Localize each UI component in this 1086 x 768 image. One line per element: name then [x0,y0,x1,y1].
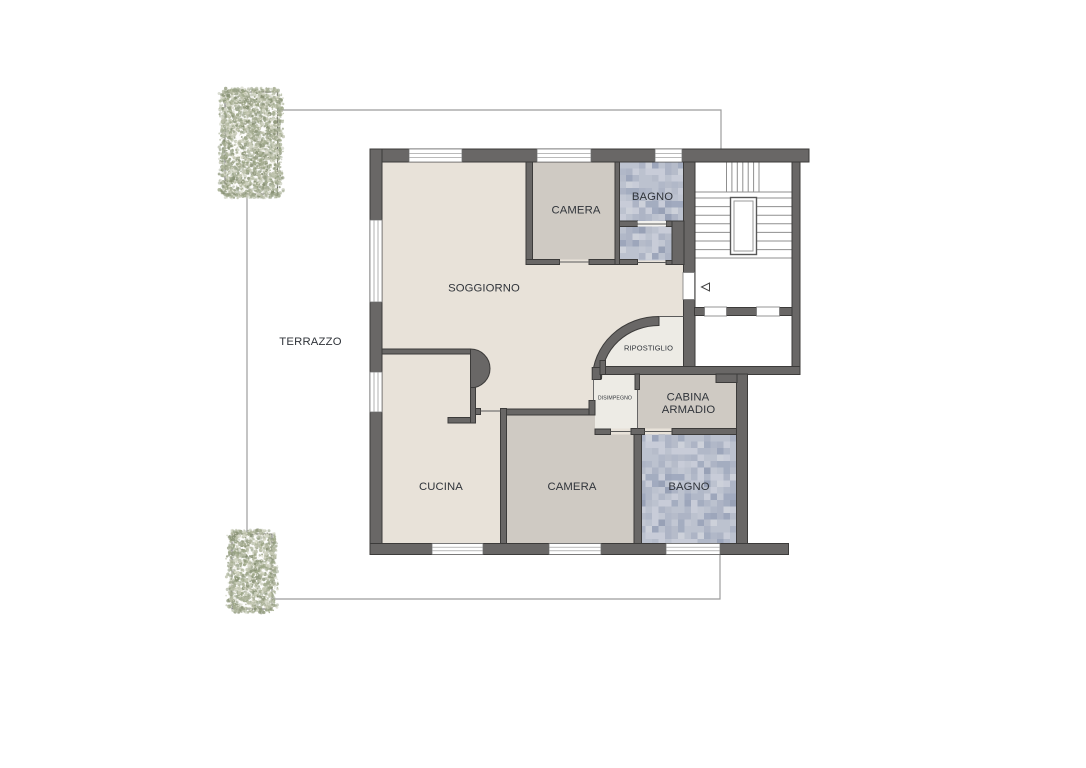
svg-text:CAMERA: CAMERA [548,481,597,493]
svg-text:CAMERA: CAMERA [552,205,601,217]
svg-text:BAGNO: BAGNO [668,481,709,493]
svg-text:DISIMPEGNO: DISIMPEGNO [598,395,632,401]
svg-text:ARMADIO: ARMADIO [662,404,716,416]
svg-text:CABINA: CABINA [667,392,710,404]
svg-text:TERRAZZO: TERRAZZO [279,336,341,348]
svg-text:RIPOSTIGLIO: RIPOSTIGLIO [624,344,673,353]
svg-text:SOGGIORNO: SOGGIORNO [448,283,520,295]
svg-text:CUCINA: CUCINA [419,481,463,493]
svg-text:BAGNO: BAGNO [632,191,673,203]
